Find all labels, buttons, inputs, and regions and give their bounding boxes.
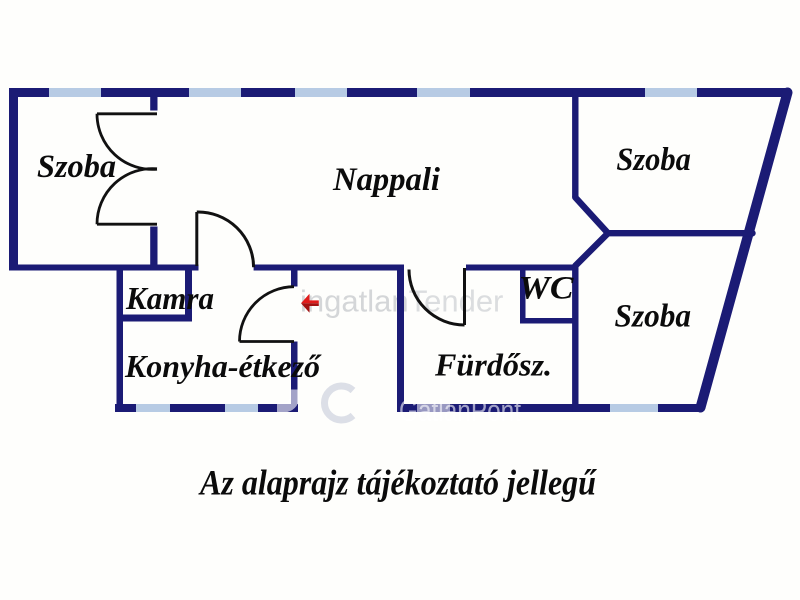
svg-text:Konyha-étkező: Konyha-étkező xyxy=(124,348,322,384)
svg-text:Nappali: Nappali xyxy=(332,162,441,198)
svg-text:Szoba: Szoba xyxy=(615,299,692,335)
svg-text:Szoba: Szoba xyxy=(37,149,116,185)
svg-text:Az alaprajz tájékoztató jelleg: Az alaprajz tájékoztató jellegű xyxy=(198,463,598,503)
svg-text:Szoba: Szoba xyxy=(616,142,691,178)
svg-text:WC: WC xyxy=(519,271,575,307)
svg-text:Kamra: Kamra xyxy=(125,280,214,316)
svg-text:Fürdősz.: Fürdősz. xyxy=(434,347,552,383)
